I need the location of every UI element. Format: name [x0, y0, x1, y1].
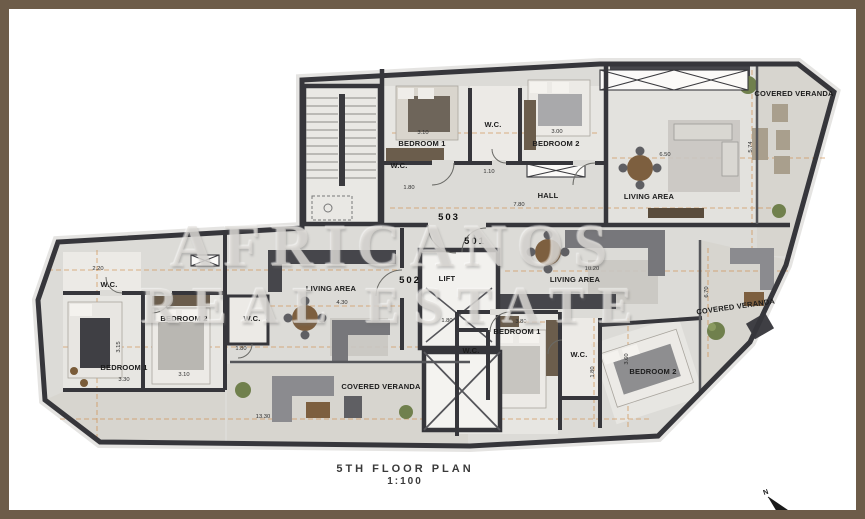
dim-label: 1.80	[235, 346, 246, 352]
room-label-bedroom1-503: BEDROOM 1	[398, 139, 445, 148]
dim-label: 3.10	[178, 372, 189, 378]
unit-label-501: 501	[464, 236, 486, 247]
floor-plan-sheet: 503 501 502 BEDROOM 1 W.C. BEDROOM 2 W.C…	[0, 0, 865, 519]
room-label-living-503: LIVING AREA	[624, 192, 675, 201]
room-label-bedroom1-502: BEDROOM 1	[100, 363, 147, 372]
dim-label: 3.10	[417, 130, 428, 136]
dim-label: 1.10	[483, 169, 494, 175]
dim-label: 3.80	[515, 319, 526, 325]
dim-label: 7.80	[513, 202, 524, 208]
dim-label: 1.80	[441, 318, 452, 324]
bed	[528, 80, 590, 136]
north-label: N	[762, 489, 769, 497]
room-label-bedroom2-503: BEDROOM 2	[532, 139, 579, 148]
room-label-wc-502a: W.C.	[100, 280, 117, 289]
room-label-wc-503a: W.C.	[484, 120, 501, 129]
dim-label: 6.70	[704, 286, 710, 297]
unit-label-502: 502	[399, 275, 421, 286]
room-label-living-501: LIVING AREA	[550, 275, 601, 284]
stair-core	[304, 86, 380, 224]
dim-label: 1.80	[590, 366, 596, 377]
dim-label: 1.80	[403, 185, 414, 191]
north-arrow-icon: N	[762, 489, 800, 510]
dim-label: 3.15	[116, 341, 122, 352]
dim-label: 2.20	[92, 266, 103, 272]
room-label-bedroom1-501: BEDROOM 1	[493, 327, 540, 336]
dim-label: 4.30	[336, 300, 347, 306]
room-label-bedroom2-502: BEDROOM 2	[160, 314, 207, 323]
dim-label: 6.50	[659, 152, 670, 158]
dim-label: 3.00	[551, 129, 562, 135]
room-label-living-502: LIVING AREA	[306, 284, 357, 293]
dim-label: 3.30	[118, 377, 129, 383]
room-label-wc-503b: W.C.	[390, 161, 407, 170]
room-label-wc-501a: W.C.	[462, 346, 479, 355]
room-label-bedroom2-501: BEDROOM 2	[629, 367, 676, 376]
room-label-veranda-502: COVERED VERANDA	[341, 382, 421, 391]
room-label-veranda-503: COVERED VERANDA	[754, 89, 834, 98]
room-label-lift: LIFT	[439, 274, 456, 283]
dim-label: 3.60	[624, 353, 630, 364]
dim-label: 13.30	[256, 414, 271, 420]
room-label-hall-503: HALL	[538, 191, 559, 200]
plan-title-text: 5TH FLOOR PLAN	[300, 463, 510, 475]
unit-label-503: 503	[438, 212, 460, 223]
floor-plan-drawing: 503 501 502 BEDROOM 1 W.C. BEDROOM 2 W.C…	[9, 9, 856, 510]
dim-label: 10.20	[585, 266, 600, 272]
room-label-wc-502b: W.C.	[243, 314, 260, 323]
dim-label: 5.74	[748, 141, 754, 153]
plan-scale-text: 1:100	[300, 476, 510, 487]
room-label-wc-501b: W.C.	[570, 350, 587, 359]
plan-title: 5TH FLOOR PLAN 1:100	[300, 463, 510, 487]
